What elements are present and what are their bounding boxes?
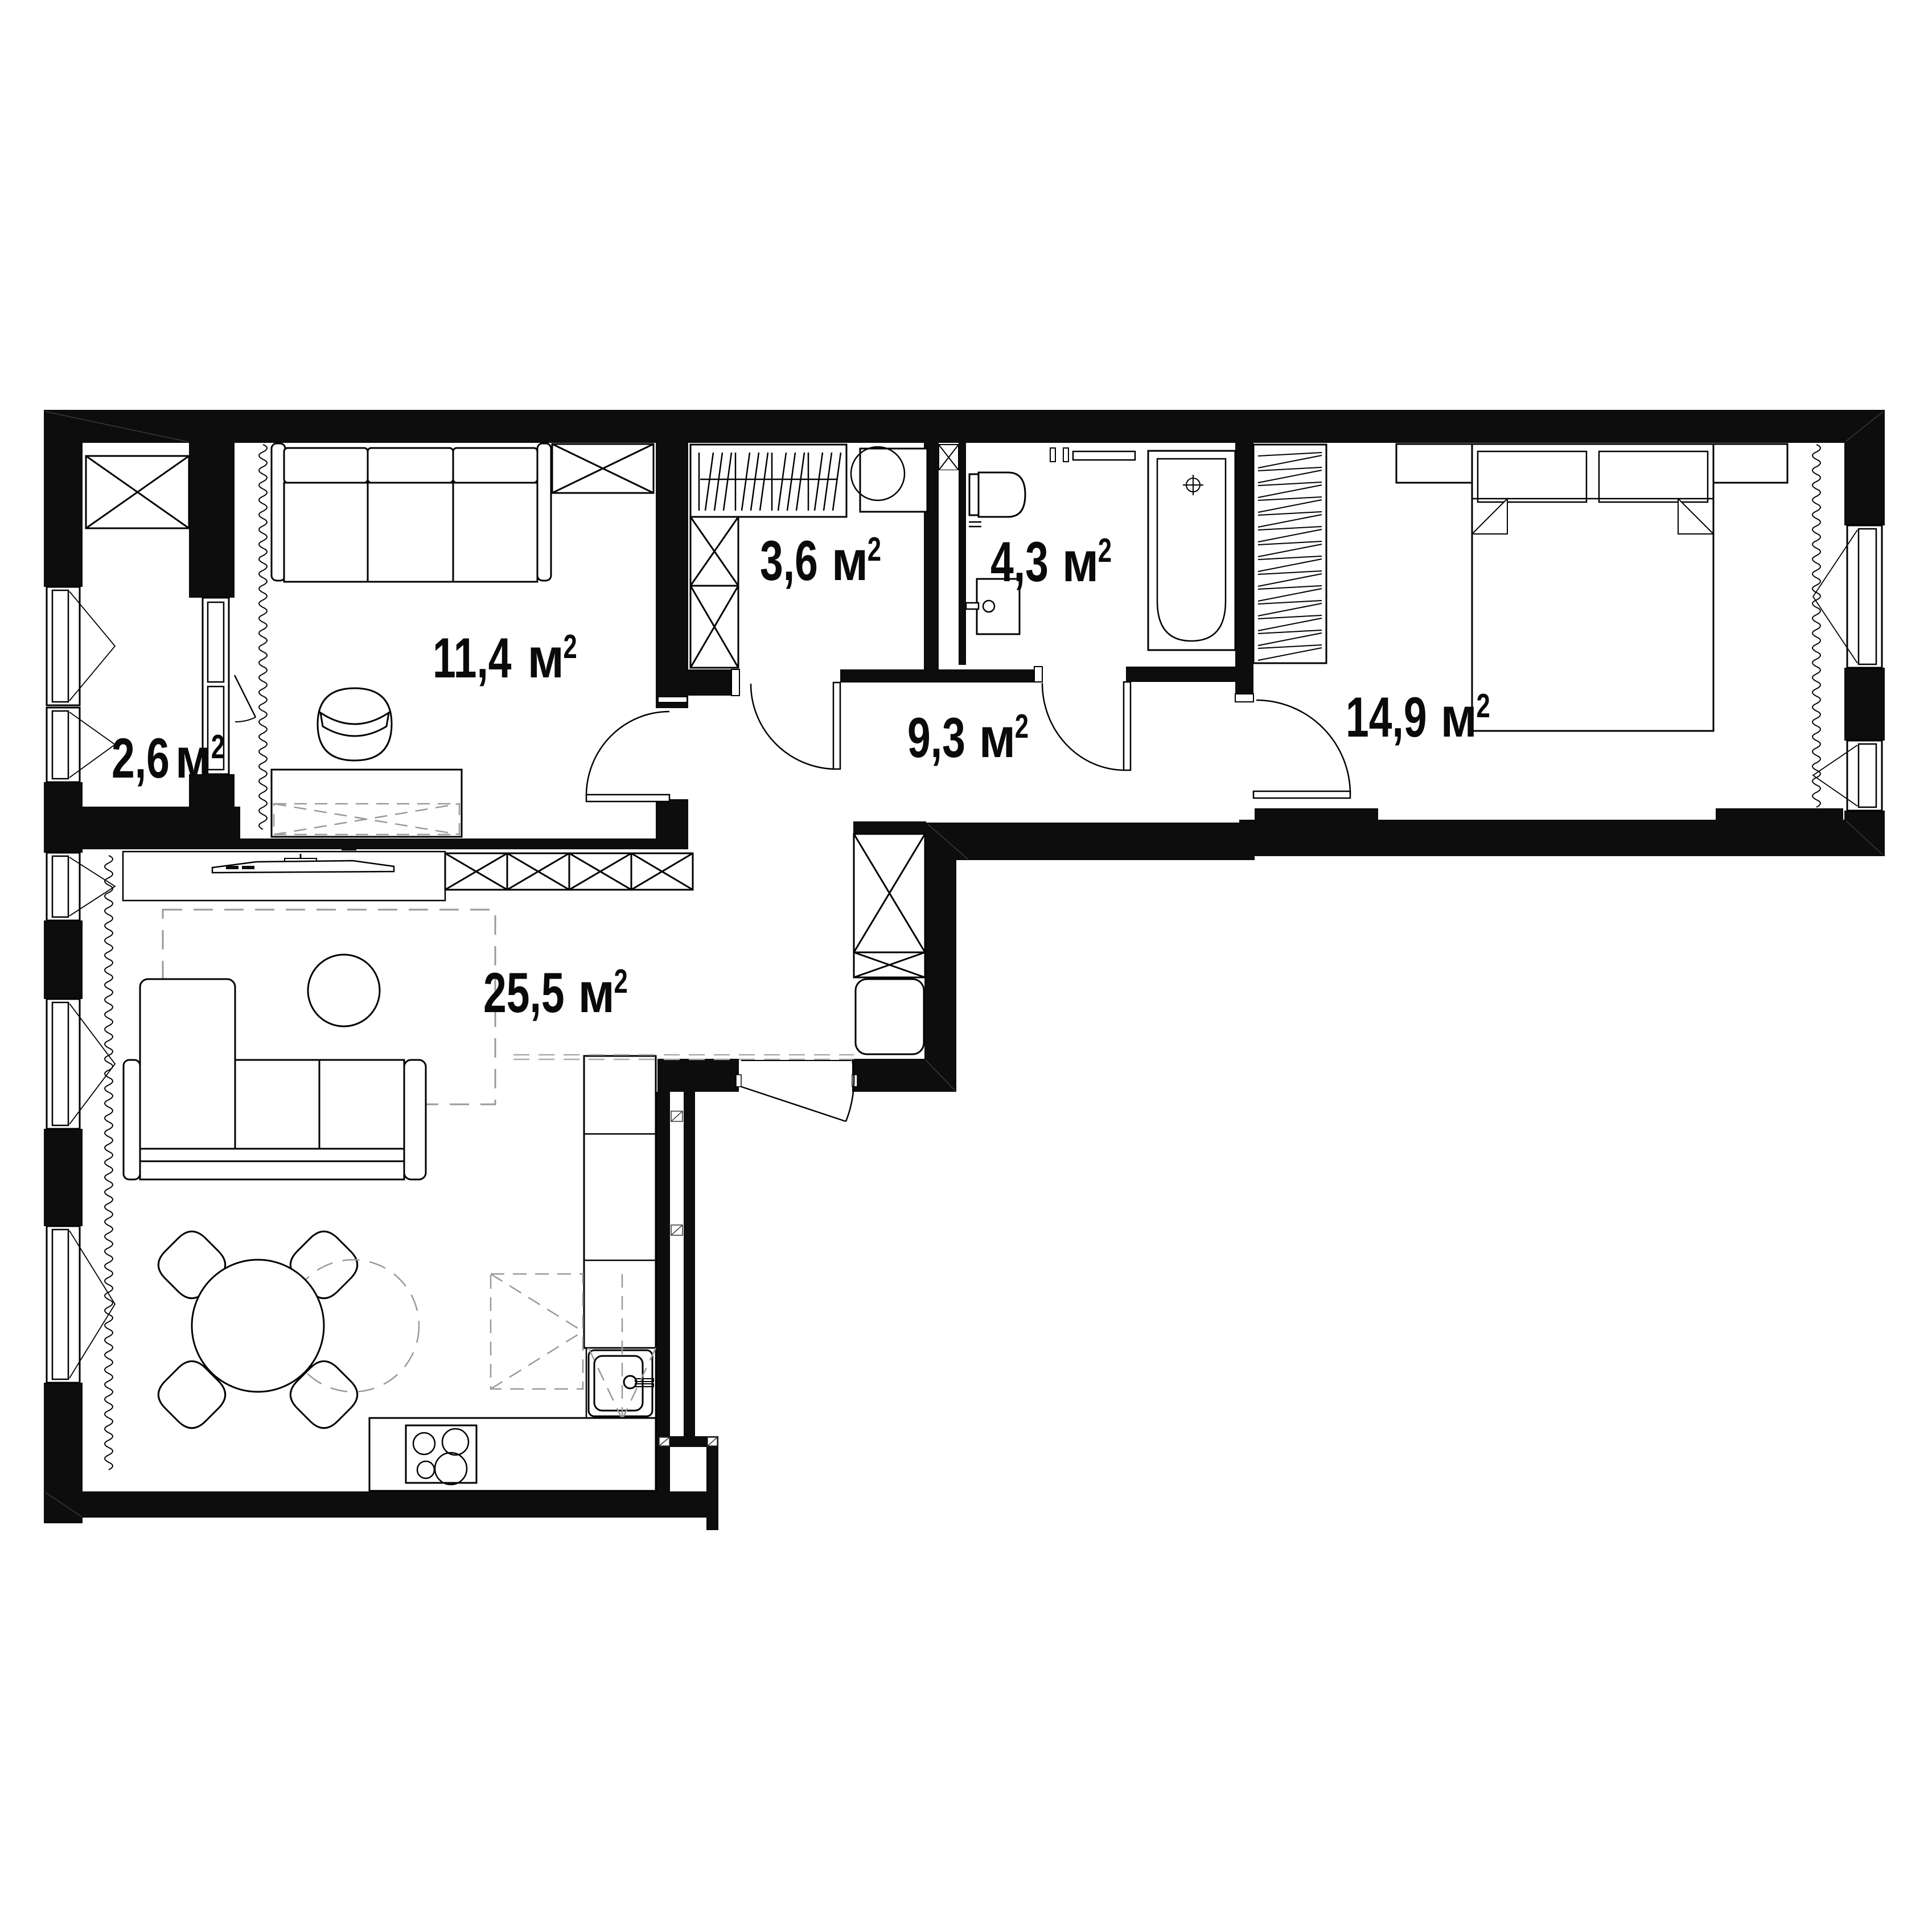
svg-text:м: м: [578, 961, 614, 1024]
svg-text:2,6: 2,6: [112, 727, 170, 790]
svg-text:м: м: [527, 627, 564, 689]
svg-text:25,5: 25,5: [483, 961, 565, 1024]
svg-text:м: м: [1440, 686, 1477, 749]
svg-text:м: м: [979, 706, 1016, 769]
svg-text:м: м: [832, 529, 868, 592]
svg-text:9,3: 9,3: [907, 706, 965, 769]
svg-text:11,4: 11,4: [433, 627, 512, 689]
svg-text:3,6: 3,6: [760, 529, 818, 592]
svg-text:2: 2: [1098, 532, 1112, 569]
svg-text:м: м: [1062, 531, 1099, 593]
svg-text:2: 2: [1015, 708, 1029, 745]
svg-text:2: 2: [211, 728, 225, 766]
svg-text:2: 2: [614, 963, 627, 1000]
svg-text:14,9: 14,9: [1346, 686, 1427, 749]
svg-text:4,3: 4,3: [990, 531, 1049, 593]
svg-text:2: 2: [868, 531, 881, 568]
svg-text:м: м: [175, 727, 212, 790]
svg-text:2: 2: [563, 628, 577, 665]
svg-text:2: 2: [1476, 687, 1490, 725]
